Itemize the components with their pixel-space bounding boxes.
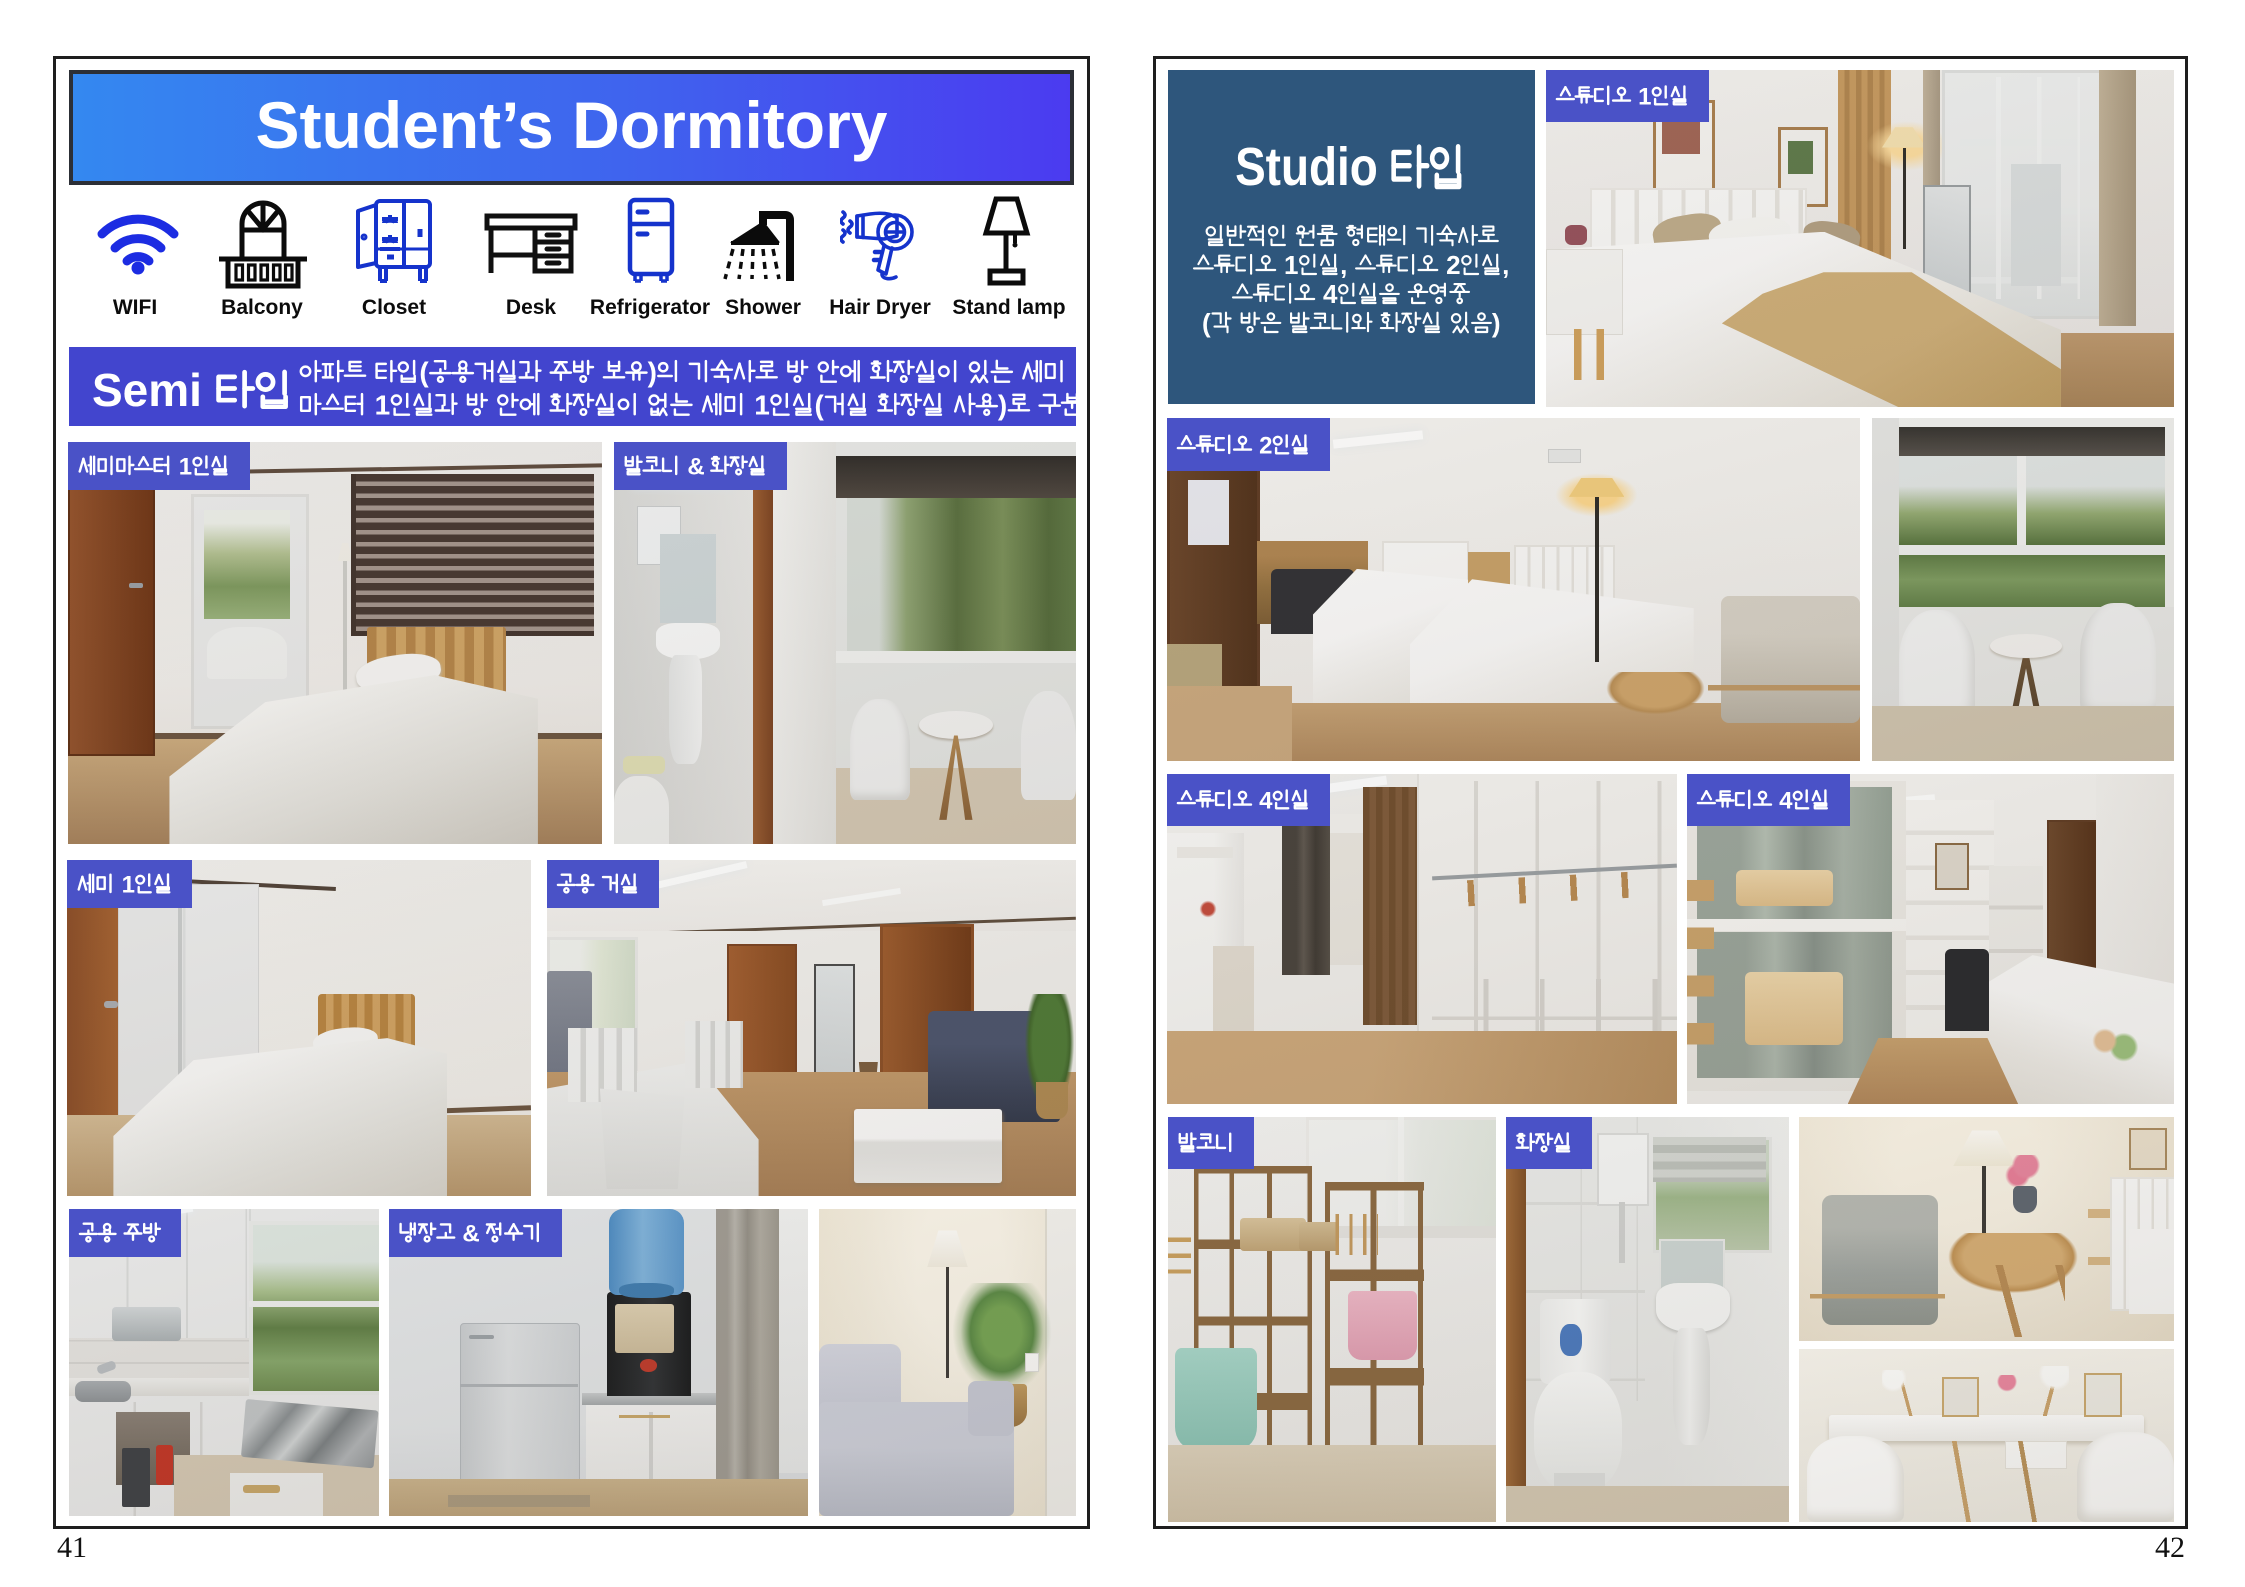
svg-text:(: ( [815, 390, 825, 421]
svg-text:4: 4 [1259, 787, 1273, 814]
svg-text:&: & [687, 453, 704, 480]
svg-text:): ) [648, 357, 657, 388]
svg-text:&: & [462, 1220, 479, 1247]
svg-text:2: 2 [1446, 250, 1460, 280]
svg-text:): ) [998, 390, 1007, 421]
svg-text:4: 4 [1323, 279, 1338, 309]
svg-text:,: , [1340, 250, 1347, 280]
svg-text:,: , [1502, 250, 1509, 280]
svg-text:(: ( [419, 357, 429, 388]
svg-text:2: 2 [1259, 432, 1272, 459]
svg-text:4: 4 [1779, 787, 1793, 814]
svg-text:1: 1 [179, 453, 192, 480]
svg-text:1: 1 [754, 390, 770, 421]
svg-text:1: 1 [375, 390, 391, 421]
svg-text:): ) [1492, 308, 1501, 338]
svg-text:1: 1 [1284, 250, 1298, 280]
svg-text:(: ( [1202, 308, 1211, 338]
svg-text:1: 1 [122, 871, 135, 898]
svg-text:1: 1 [1638, 83, 1651, 110]
